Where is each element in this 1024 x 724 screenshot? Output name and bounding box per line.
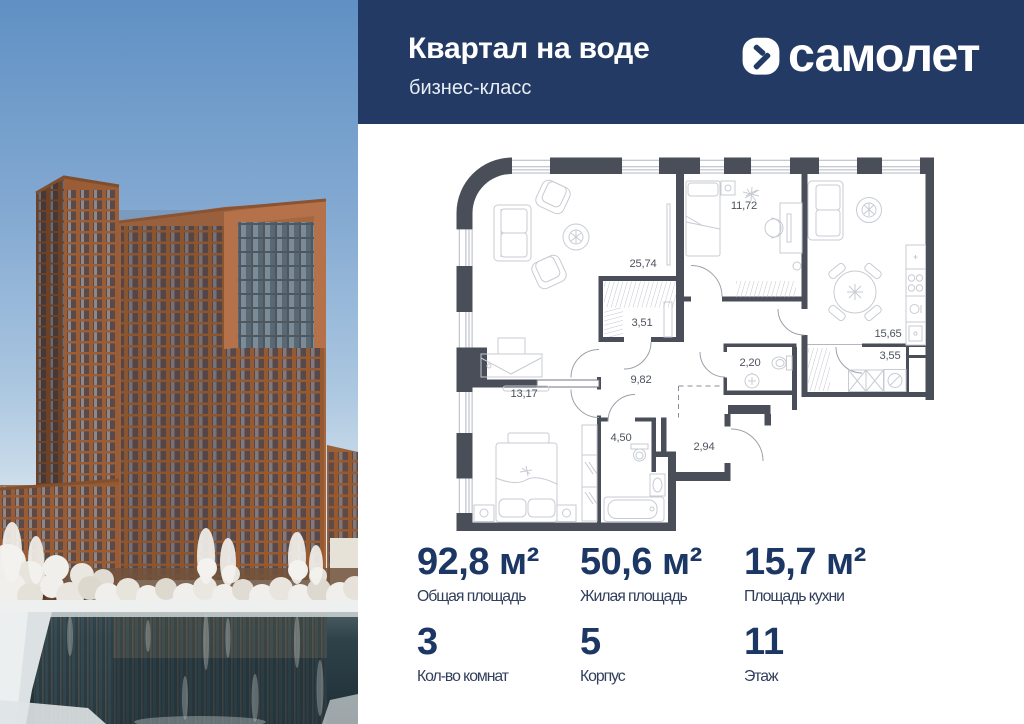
svg-text:11,72: 11,72 xyxy=(731,200,757,212)
svg-text:4,50: 4,50 xyxy=(611,432,632,444)
svg-text:2,94: 2,94 xyxy=(694,441,715,453)
svg-text:25,74: 25,74 xyxy=(630,258,657,270)
svg-text:15,65: 15,65 xyxy=(875,328,902,340)
svg-text:3,55: 3,55 xyxy=(880,350,901,362)
svg-text:3,51: 3,51 xyxy=(632,317,653,329)
svg-text:13,17: 13,17 xyxy=(511,388,538,400)
svg-text:9,82: 9,82 xyxy=(631,374,652,386)
svg-text:самолет: самолет xyxy=(788,34,980,78)
svg-text:2,20: 2,20 xyxy=(740,357,761,369)
